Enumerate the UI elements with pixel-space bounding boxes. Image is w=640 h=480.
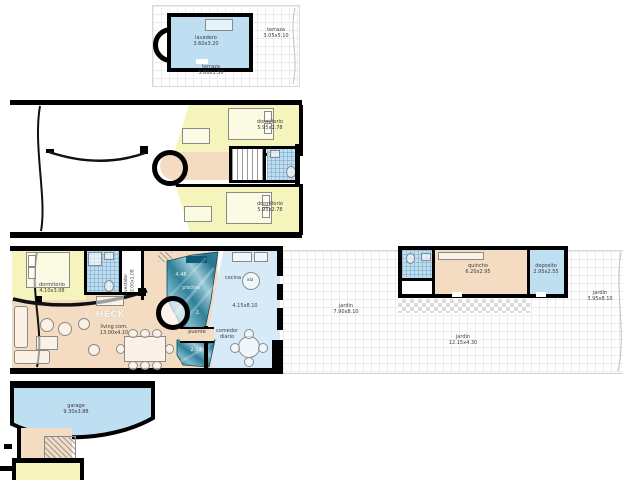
armchair bbox=[58, 322, 72, 336]
pillow bbox=[28, 267, 36, 279]
room-lower bbox=[12, 458, 84, 480]
sink bbox=[104, 252, 114, 260]
chair bbox=[258, 343, 268, 353]
water-dim-length: 2.04 bbox=[184, 347, 208, 353]
shower bbox=[88, 252, 102, 266]
room-dims: 3.95x8.10 bbox=[580, 296, 620, 302]
wall bbox=[86, 292, 144, 295]
chair bbox=[116, 344, 125, 354]
chair bbox=[140, 361, 150, 370]
wall bbox=[138, 288, 146, 296]
site-boundary-line bbox=[618, 252, 621, 371]
kitchen-counter bbox=[254, 252, 268, 262]
island-label: isla bbox=[242, 277, 258, 282]
room-label-garage: garage 9.30x3.88 bbox=[54, 403, 98, 416]
room-name: comedor diario bbox=[214, 328, 240, 341]
kitchen-dims-label: 4.15x8.10 bbox=[228, 303, 262, 309]
watermark-text: HECK bbox=[96, 310, 125, 320]
wall bbox=[36, 296, 42, 302]
dim-text: 2. bbox=[192, 310, 204, 316]
pool-label: piscina bbox=[176, 285, 206, 291]
breakfast-table bbox=[238, 336, 260, 358]
room-label-vestidor: vestidor 2.00x1.08 bbox=[124, 252, 137, 292]
site-boundary-line bbox=[293, 8, 295, 84]
facade-curve-upper bbox=[38, 106, 43, 231]
room-dims: 4.10x3.08 bbox=[30, 288, 74, 294]
room-dims: 2.00x1.08 bbox=[130, 269, 135, 292]
cabinet bbox=[96, 296, 124, 306]
garden-label-fondo: jardin 3.95x8.10 bbox=[580, 290, 620, 303]
room-label-dormitorio-main: dormitorio 4.10x3.08 bbox=[30, 282, 74, 295]
watermark: ⊕ HECK bbox=[84, 310, 125, 320]
bridge-label: puente bbox=[180, 329, 214, 335]
toilet bbox=[104, 280, 114, 292]
wall bbox=[119, 250, 122, 293]
dining-table bbox=[124, 336, 166, 362]
main-spiral-stair bbox=[156, 296, 190, 330]
wall bbox=[17, 428, 21, 460]
armchair bbox=[40, 318, 54, 332]
chair bbox=[152, 329, 162, 338]
chair bbox=[152, 361, 162, 370]
room-dims: 2.95x2.55 bbox=[528, 269, 564, 275]
room-name: puente bbox=[180, 329, 214, 335]
room-label-living: living com. 13.00x4.10 bbox=[92, 324, 136, 337]
room-dims: 4.15x8.10 bbox=[228, 303, 262, 309]
room-name: isla bbox=[242, 277, 258, 282]
pool-dim-mark: 2. bbox=[192, 310, 204, 316]
room-dims: 7.90x8.10 bbox=[326, 309, 366, 315]
sofa bbox=[14, 306, 28, 348]
room-name: piscina bbox=[176, 285, 206, 291]
wall bbox=[0, 466, 12, 471]
pillow bbox=[28, 255, 36, 267]
garden-label-patio: jardin 7.90x8.10 bbox=[326, 303, 366, 316]
coffee-table bbox=[36, 336, 58, 350]
chair bbox=[140, 329, 150, 338]
wall bbox=[277, 284, 283, 300]
chair bbox=[230, 343, 240, 353]
dim-text: 2.04 bbox=[184, 347, 208, 353]
side-table bbox=[88, 344, 100, 356]
wall bbox=[84, 250, 87, 295]
chair bbox=[244, 357, 254, 367]
watermark-logo-icon: ⊕ bbox=[84, 310, 92, 320]
pool-dim-width: 4.48 bbox=[170, 272, 192, 278]
floor-plan-sheet: lavadero 3.60x3.20 terraza 3.05x5.10 ter… bbox=[0, 0, 640, 480]
sofa bbox=[14, 350, 50, 364]
wall bbox=[277, 308, 283, 330]
room-dims: 6.20x2.95 bbox=[450, 269, 506, 275]
room-label-quincho: quincho 6.20x2.95 bbox=[450, 263, 506, 276]
dim-text: 4.48 bbox=[170, 272, 192, 278]
wall bbox=[4, 444, 12, 449]
chair bbox=[128, 361, 138, 370]
room-dims: 9.30x3.88 bbox=[54, 409, 98, 415]
room-name: vestidor bbox=[124, 274, 129, 292]
room-label-comedor: comedor diario bbox=[214, 328, 240, 341]
room-dims: 12.15x4.30 bbox=[443, 340, 483, 346]
kitchen-counter bbox=[232, 252, 252, 262]
chair bbox=[165, 344, 174, 354]
garden-label-lateral: jardin 12.15x4.30 bbox=[443, 334, 483, 347]
wall bbox=[10, 246, 283, 251]
terrace-wall-curve bbox=[49, 152, 145, 161]
wall bbox=[277, 246, 283, 276]
wall bbox=[10, 381, 155, 386]
room-dims: 13.00x4.10 bbox=[92, 330, 136, 336]
wall bbox=[272, 340, 283, 372]
chair bbox=[244, 329, 254, 339]
room-label-deposito: deposito 2.95x2.55 bbox=[528, 263, 564, 276]
